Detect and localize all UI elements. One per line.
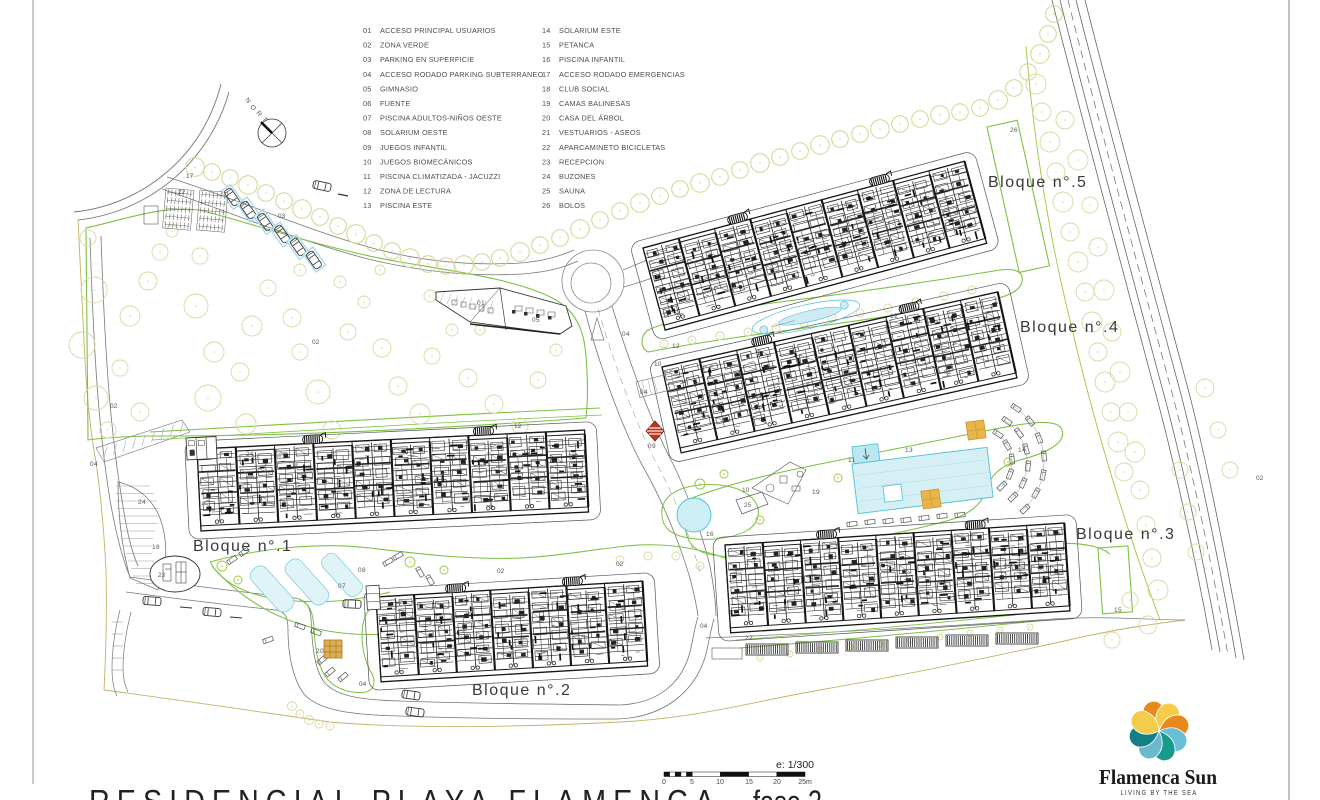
svg-text:GIMNASIO: GIMNASIO	[380, 84, 418, 93]
svg-text:04: 04	[640, 389, 648, 396]
svg-text:BUZONES: BUZONES	[559, 172, 596, 181]
svg-text:24: 24	[138, 499, 146, 506]
svg-text:04: 04	[622, 331, 630, 338]
svg-text:02: 02	[1256, 475, 1264, 482]
svg-text:ACCESO PRINCIPAL USUARIOS: ACCESO PRINCIPAL USUARIOS	[380, 26, 496, 35]
svg-text:FUENTE: FUENTE	[380, 99, 410, 108]
svg-text:22: 22	[178, 189, 186, 196]
svg-text:24: 24	[542, 172, 551, 181]
svg-text:17: 17	[542, 70, 551, 79]
svg-text:01: 01	[363, 26, 372, 35]
svg-text:APARCAMINETO BICICLETAS: APARCAMINETO BICICLETAS	[559, 143, 665, 152]
svg-text:23: 23	[542, 157, 551, 166]
svg-text:04: 04	[90, 461, 98, 468]
svg-text:12: 12	[363, 187, 372, 196]
svg-text:05: 05	[363, 84, 372, 93]
svg-text:08: 08	[358, 567, 366, 574]
svg-text:18: 18	[152, 544, 160, 551]
svg-text:06: 06	[363, 99, 372, 108]
svg-text:02: 02	[1004, 563, 1012, 570]
svg-text:Flamenca Sun: Flamenca Sun	[1099, 765, 1217, 789]
svg-text:15: 15	[745, 779, 753, 786]
svg-text:24: 24	[246, 451, 254, 458]
svg-text:14: 14	[542, 26, 551, 35]
svg-text:LIVING BY THE SEA: LIVING BY THE SEA	[1121, 790, 1198, 797]
svg-text:PARKING EN SUPERFICIE: PARKING EN SUPERFICIE	[380, 55, 474, 64]
svg-text:02: 02	[944, 369, 952, 376]
svg-text:25: 25	[542, 187, 551, 196]
svg-text:12: 12	[890, 313, 898, 320]
svg-text:02: 02	[363, 41, 372, 50]
svg-text:ZONA VERDE: ZONA VERDE	[380, 41, 429, 50]
svg-text:02: 02	[312, 339, 320, 346]
svg-text:26: 26	[542, 201, 551, 210]
svg-text:PISCINA ESTE: PISCINA ESTE	[380, 201, 432, 210]
svg-text:BOLOS: BOLOS	[559, 201, 585, 210]
svg-text:VESTUARIOS - ASEOS: VESTUARIOS - ASEOS	[559, 128, 641, 137]
svg-text:10: 10	[363, 157, 372, 166]
svg-text:SOLARIUM OESTE: SOLARIUM OESTE	[380, 128, 448, 137]
svg-text:PETANCA: PETANCA	[559, 41, 594, 50]
svg-text:PISCINA INFANTIL: PISCINA INFANTIL	[559, 55, 625, 64]
svg-text:26: 26	[1010, 127, 1018, 134]
svg-text:04: 04	[363, 70, 372, 79]
svg-text:Bloque n°.3: Bloque n°.3	[1076, 526, 1175, 543]
svg-text:RECEPCION: RECEPCION	[559, 157, 604, 166]
svg-text:fase 2: fase 2	[753, 784, 822, 800]
svg-text:08: 08	[363, 128, 372, 137]
svg-text:Bloque n°.4: Bloque n°.4	[1020, 319, 1119, 336]
svg-text:20: 20	[316, 648, 324, 655]
svg-text:15: 15	[542, 41, 551, 50]
svg-text:SAUNA: SAUNA	[559, 187, 585, 196]
svg-text:11: 11	[848, 457, 856, 464]
svg-text:09: 09	[648, 443, 656, 450]
svg-text:Bloque n°.1: Bloque n°.1	[193, 538, 292, 555]
svg-text:22: 22	[745, 635, 753, 642]
svg-text:JUEGOS INFANTIL: JUEGOS INFANTIL	[380, 143, 447, 152]
svg-text:10: 10	[742, 487, 750, 494]
svg-text:05: 05	[532, 317, 540, 324]
svg-text:15: 15	[1114, 607, 1122, 614]
svg-text:SOLARIUM ESTE: SOLARIUM ESTE	[559, 26, 621, 35]
svg-text:07: 07	[363, 114, 372, 123]
svg-text:03: 03	[278, 213, 286, 220]
svg-text:09: 09	[363, 143, 372, 152]
svg-text:04: 04	[700, 623, 708, 630]
svg-text:e: 1/300: e: 1/300	[776, 759, 814, 771]
svg-text:02: 02	[110, 403, 118, 410]
svg-text:10: 10	[654, 361, 662, 368]
svg-text:01: 01	[477, 300, 485, 307]
svg-text:ACCESO RODADO PARKING SUBTERRA: ACCESO RODADO PARKING SUBTERRANEO	[380, 70, 543, 79]
svg-text:19: 19	[812, 489, 820, 496]
svg-text:Bloque n°.5: Bloque n°.5	[988, 174, 1087, 191]
svg-text:22: 22	[542, 143, 551, 152]
svg-text:12: 12	[672, 343, 680, 350]
svg-text:CAMAS BALINESAS: CAMAS BALINESAS	[559, 99, 631, 108]
svg-text:17: 17	[186, 173, 194, 180]
svg-text:23: 23	[158, 573, 166, 579]
svg-text:CLUB SOCIAL: CLUB SOCIAL	[559, 84, 609, 93]
svg-text:11: 11	[363, 172, 371, 181]
svg-text:12: 12	[514, 423, 522, 430]
svg-text:RESIDENCIAL PLAYA FLAMENCA: RESIDENCIAL PLAYA FLAMENCA	[89, 783, 721, 800]
svg-text:02: 02	[616, 561, 624, 568]
svg-text:21: 21	[542, 128, 551, 137]
svg-text:16: 16	[706, 531, 714, 538]
svg-text:ACCESO RODADO EMERGENCIAS: ACCESO RODADO EMERGENCIAS	[559, 70, 685, 79]
svg-text:PISCINA ADULTOS-NIÑOS OESTE: PISCINA ADULTOS-NIÑOS OESTE	[380, 114, 502, 123]
svg-text:13: 13	[363, 201, 372, 210]
svg-text:18: 18	[542, 84, 551, 93]
svg-text:PISCINA CLIMATIZADA - JACUZZI: PISCINA CLIMATIZADA - JACUZZI	[380, 172, 500, 181]
svg-text:20: 20	[542, 114, 551, 123]
svg-text:07: 07	[338, 583, 346, 590]
svg-text:02: 02	[497, 568, 505, 575]
svg-text:03: 03	[363, 55, 372, 64]
svg-text:JUEGOS BIOMECÁNICOS: JUEGOS BIOMECÁNICOS	[380, 157, 473, 166]
svg-text:19: 19	[542, 99, 551, 108]
svg-text:13: 13	[905, 447, 913, 454]
svg-text:CASA DEL ÁRBOL: CASA DEL ÁRBOL	[559, 114, 624, 123]
svg-text:04: 04	[359, 681, 367, 688]
svg-text:Bloque n°.2: Bloque n°.2	[472, 682, 571, 699]
svg-text:25: 25	[744, 503, 752, 509]
svg-text:ZONA DE LECTURA: ZONA DE LECTURA	[380, 187, 451, 196]
svg-text:16: 16	[542, 55, 551, 64]
